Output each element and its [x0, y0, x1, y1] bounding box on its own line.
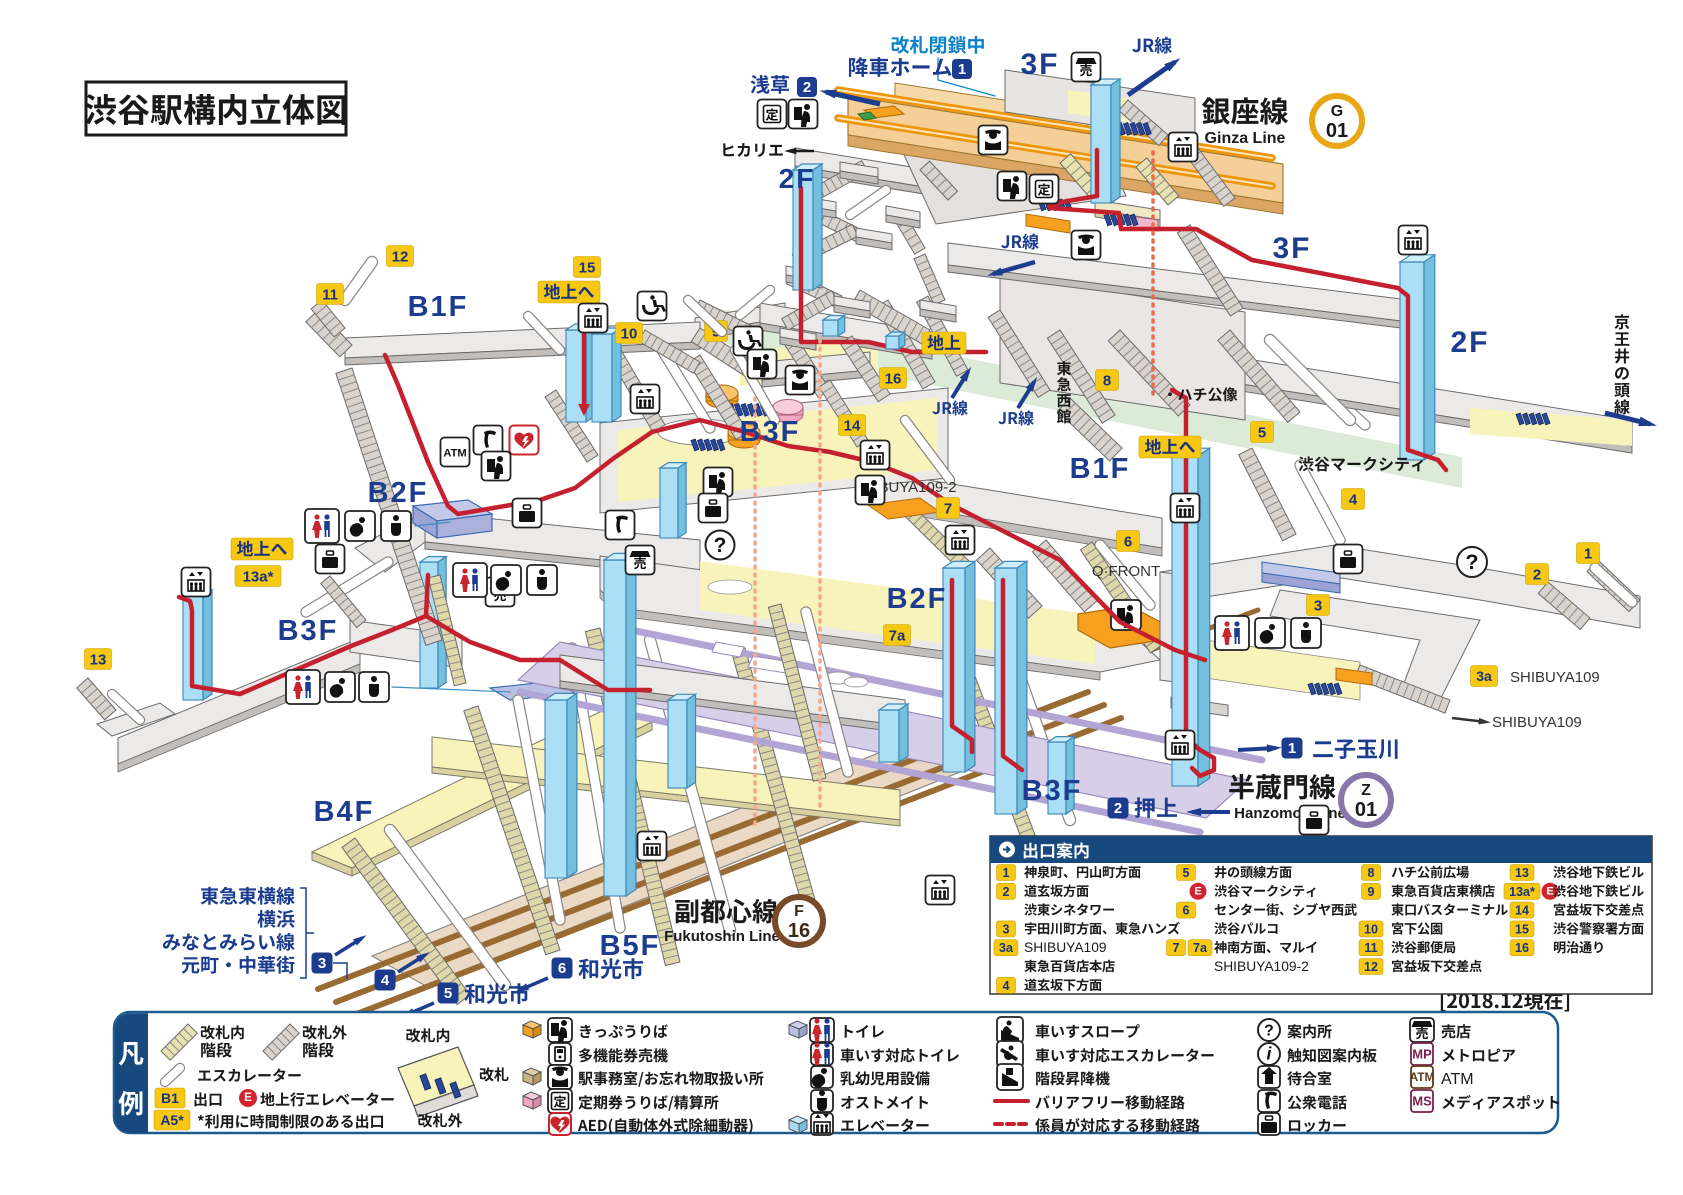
svg-text:8: 8 [1103, 372, 1111, 389]
svg-text:B3F: B3F [740, 416, 801, 448]
svg-text:7: 7 [944, 500, 952, 517]
svg-text:2: 2 [1003, 885, 1010, 899]
svg-text:3: 3 [1314, 597, 1322, 614]
svg-text:1: 1 [1003, 866, 1010, 880]
svg-text:B3F: B3F [278, 615, 339, 647]
svg-text:11: 11 [1364, 941, 1377, 955]
svg-text:1: 1 [1288, 740, 1296, 757]
svg-text:4: 4 [1349, 491, 1358, 508]
svg-text:4: 4 [1003, 979, 1010, 993]
svg-text:ATM: ATM [1441, 1071, 1474, 1088]
svg-text:B1F: B1F [408, 291, 469, 323]
svg-text:8: 8 [1368, 866, 1375, 880]
svg-text:A5*: A5* [160, 1112, 184, 1128]
svg-text:15: 15 [579, 259, 596, 276]
svg-text:2F: 2F [1450, 326, 1489, 359]
svg-text:SHIBUYA109: SHIBUYA109 [1024, 940, 1107, 955]
svg-text:2: 2 [1114, 800, 1122, 817]
svg-text:Q·FRONT: Q·FRONT [1092, 563, 1160, 580]
svg-text:5: 5 [444, 985, 452, 1002]
svg-text:3a: 3a [999, 941, 1014, 955]
svg-text:2: 2 [803, 79, 811, 96]
svg-text:1: 1 [1584, 545, 1592, 562]
svg-text:5: 5 [1183, 866, 1190, 880]
svg-text:9: 9 [1368, 885, 1375, 899]
svg-text:3: 3 [318, 955, 326, 972]
svg-text:3F: 3F [1020, 48, 1059, 81]
svg-text:01: 01 [1326, 120, 1348, 142]
svg-text:E: E [244, 1091, 252, 1104]
svg-text:E: E [1194, 885, 1201, 897]
svg-text:?: ? [714, 534, 727, 557]
svg-text:2: 2 [1533, 566, 1541, 583]
svg-text:B4F: B4F [314, 796, 375, 828]
svg-text:MP: MP [1412, 1047, 1432, 1062]
svg-text:4: 4 [381, 972, 390, 989]
svg-text:12: 12 [1364, 960, 1378, 974]
svg-text:F: F [794, 903, 804, 920]
svg-text:3a: 3a [1476, 668, 1492, 684]
svg-text:B2F: B2F [368, 477, 429, 509]
svg-text:16: 16 [1515, 941, 1529, 955]
svg-text:6: 6 [558, 960, 566, 977]
svg-text:E: E [1546, 885, 1553, 897]
svg-text:2F: 2F [779, 163, 816, 194]
svg-text:SHIBUYA109-2: SHIBUYA109-2 [1214, 959, 1309, 974]
svg-text:5: 5 [1258, 424, 1266, 441]
svg-text:15: 15 [1515, 922, 1529, 936]
svg-text:B2F: B2F [887, 583, 948, 615]
svg-text:16: 16 [885, 370, 902, 387]
svg-text:7a: 7a [1193, 941, 1208, 955]
svg-text:11: 11 [322, 286, 338, 303]
svg-text:ATM: ATM [443, 448, 466, 460]
svg-text:?: ? [1465, 549, 1478, 574]
svg-text:6: 6 [1183, 904, 1190, 918]
svg-text:10: 10 [1364, 922, 1378, 936]
svg-text:MS: MS [1412, 1094, 1432, 1109]
svg-text:14: 14 [844, 417, 861, 434]
svg-text:Z: Z [1361, 782, 1371, 799]
svg-text:12: 12 [392, 248, 409, 265]
svg-text:3: 3 [1003, 922, 1010, 936]
svg-text:13a*: 13a* [1509, 885, 1535, 899]
svg-text:Fukutoshin Line: Fukutoshin Line [664, 928, 780, 945]
svg-text:SHIBUYA109: SHIBUYA109 [1510, 669, 1600, 686]
svg-text:Ginza Line: Ginza Line [1205, 130, 1286, 147]
svg-text:16: 16 [788, 920, 810, 942]
svg-text:7a: 7a [889, 627, 906, 644]
svg-text:B1F: B1F [1070, 453, 1131, 485]
svg-text:3F: 3F [1272, 232, 1311, 265]
svg-text:13a*: 13a* [243, 568, 274, 585]
svg-text:SHIBUYA109: SHIBUYA109 [1492, 714, 1582, 731]
svg-text:7: 7 [1173, 941, 1180, 955]
svg-text:ATM: ATM [1409, 1070, 1434, 1084]
svg-text:13: 13 [90, 651, 107, 668]
svg-text:B3F: B3F [1022, 775, 1083, 807]
svg-text:6: 6 [1124, 533, 1132, 550]
svg-text:B1: B1 [161, 1090, 179, 1106]
svg-text:G: G [1331, 103, 1343, 120]
svg-text:01: 01 [1355, 799, 1377, 821]
svg-text:B5F: B5F [600, 930, 661, 962]
svg-text:?: ? [1264, 1022, 1274, 1039]
svg-text:10: 10 [621, 325, 638, 342]
svg-text:1: 1 [958, 61, 966, 78]
svg-text:14: 14 [1515, 904, 1529, 918]
svg-text:13: 13 [1515, 866, 1529, 880]
